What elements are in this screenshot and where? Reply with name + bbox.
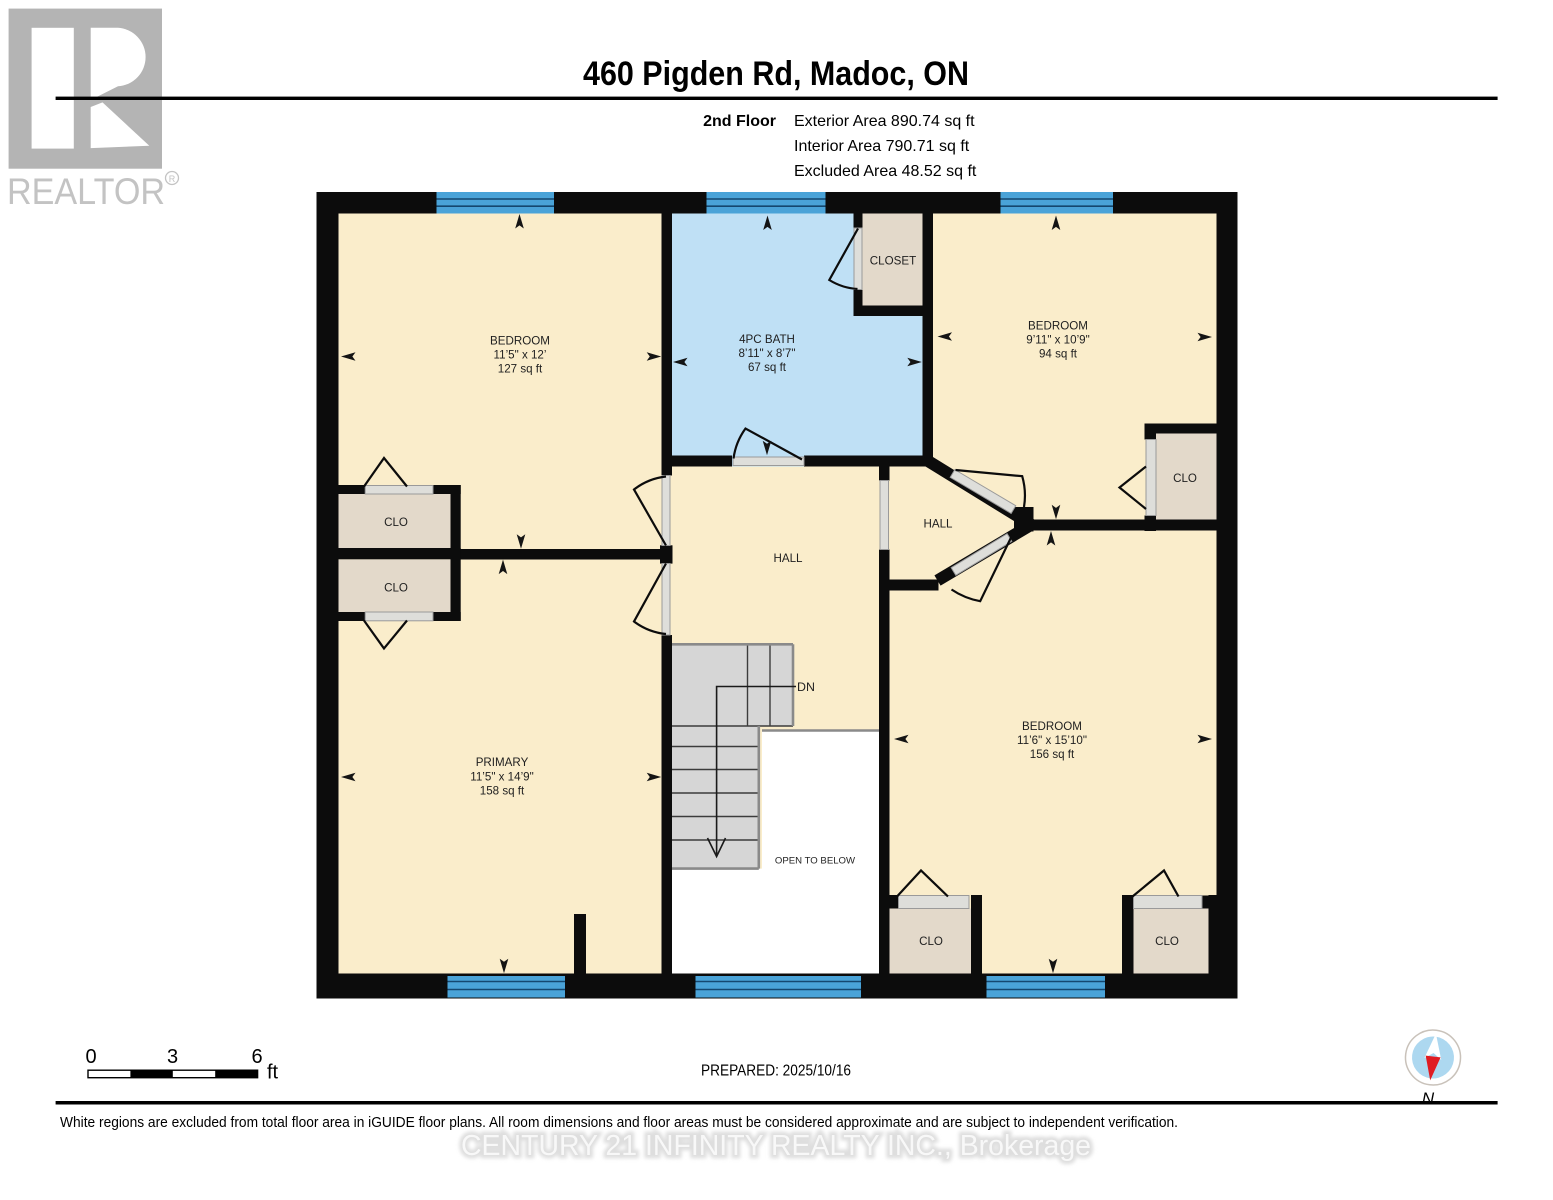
- svg-text:HALL: HALL: [923, 518, 953, 531]
- svg-text:67 sq ft: 67 sq ft: [748, 361, 787, 374]
- svg-text:Interior Area 790.71 sq ft: Interior Area 790.71 sq ft: [794, 138, 970, 155]
- svg-text:PRIMARY: PRIMARY: [476, 756, 529, 769]
- svg-text:CLO: CLO: [1155, 935, 1179, 948]
- svg-text:CENTURY 21 INFINITY REALTY INC: CENTURY 21 INFINITY REALTY INC., Brokera…: [461, 1130, 1091, 1162]
- svg-text:11’5" x 14’9": 11’5" x 14’9": [470, 771, 533, 784]
- svg-text:CLO: CLO: [384, 582, 408, 595]
- svg-text:CLOSET: CLOSET: [870, 255, 916, 268]
- svg-text:N: N: [1422, 1089, 1435, 1108]
- svg-text:127 sq ft: 127 sq ft: [498, 363, 543, 376]
- svg-text:0: 0: [85, 1046, 96, 1068]
- svg-text:3: 3: [167, 1046, 178, 1068]
- svg-text:8’11" x 8’7": 8’11" x 8’7": [738, 347, 795, 360]
- svg-text:4PC BATH: 4PC BATH: [739, 333, 795, 346]
- svg-text:DN: DN: [797, 680, 815, 694]
- svg-text:BEDROOM: BEDROOM: [1022, 720, 1082, 733]
- svg-text:HALL: HALL: [773, 552, 803, 565]
- svg-text:156 sq ft: 156 sq ft: [1030, 748, 1075, 761]
- svg-text:Excluded Area 48.52 sq ft: Excluded Area 48.52 sq ft: [794, 163, 977, 180]
- svg-text:6: 6: [251, 1046, 262, 1068]
- svg-text:11’5" x 12’: 11’5" x 12’: [494, 349, 547, 362]
- svg-text:BEDROOM: BEDROOM: [490, 335, 550, 348]
- svg-text:BEDROOM: BEDROOM: [1028, 320, 1088, 333]
- svg-text:CLO: CLO: [919, 935, 943, 948]
- svg-text:Exterior Area 890.74 sq ft: Exterior Area 890.74 sq ft: [794, 113, 975, 130]
- svg-text:9’11" x 10’9": 9’11" x 10’9": [1026, 334, 1089, 347]
- svg-text:460 Pigden Rd, Madoc, ON: 460 Pigden Rd, Madoc, ON: [583, 55, 969, 93]
- svg-text:OPEN TO BELOW: OPEN TO BELOW: [775, 856, 856, 867]
- svg-text:ft: ft: [267, 1062, 279, 1084]
- svg-text:PREPARED: 2025/10/16: PREPARED: 2025/10/16: [701, 1063, 851, 1080]
- svg-text:R: R: [169, 174, 176, 184]
- svg-text:REALTOR: REALTOR: [7, 171, 165, 212]
- svg-text:CLO: CLO: [1173, 472, 1197, 485]
- svg-text:158 sq ft: 158 sq ft: [480, 785, 525, 798]
- svg-text:2nd Floor: 2nd Floor: [703, 113, 776, 130]
- svg-text:White regions are excluded fro: White regions are excluded from total fl…: [60, 1115, 1178, 1131]
- svg-text:CLO: CLO: [384, 516, 408, 529]
- svg-text:94 sq ft: 94 sq ft: [1039, 348, 1078, 361]
- svg-text:11’6" x 15’10": 11’6" x 15’10": [1017, 734, 1087, 747]
